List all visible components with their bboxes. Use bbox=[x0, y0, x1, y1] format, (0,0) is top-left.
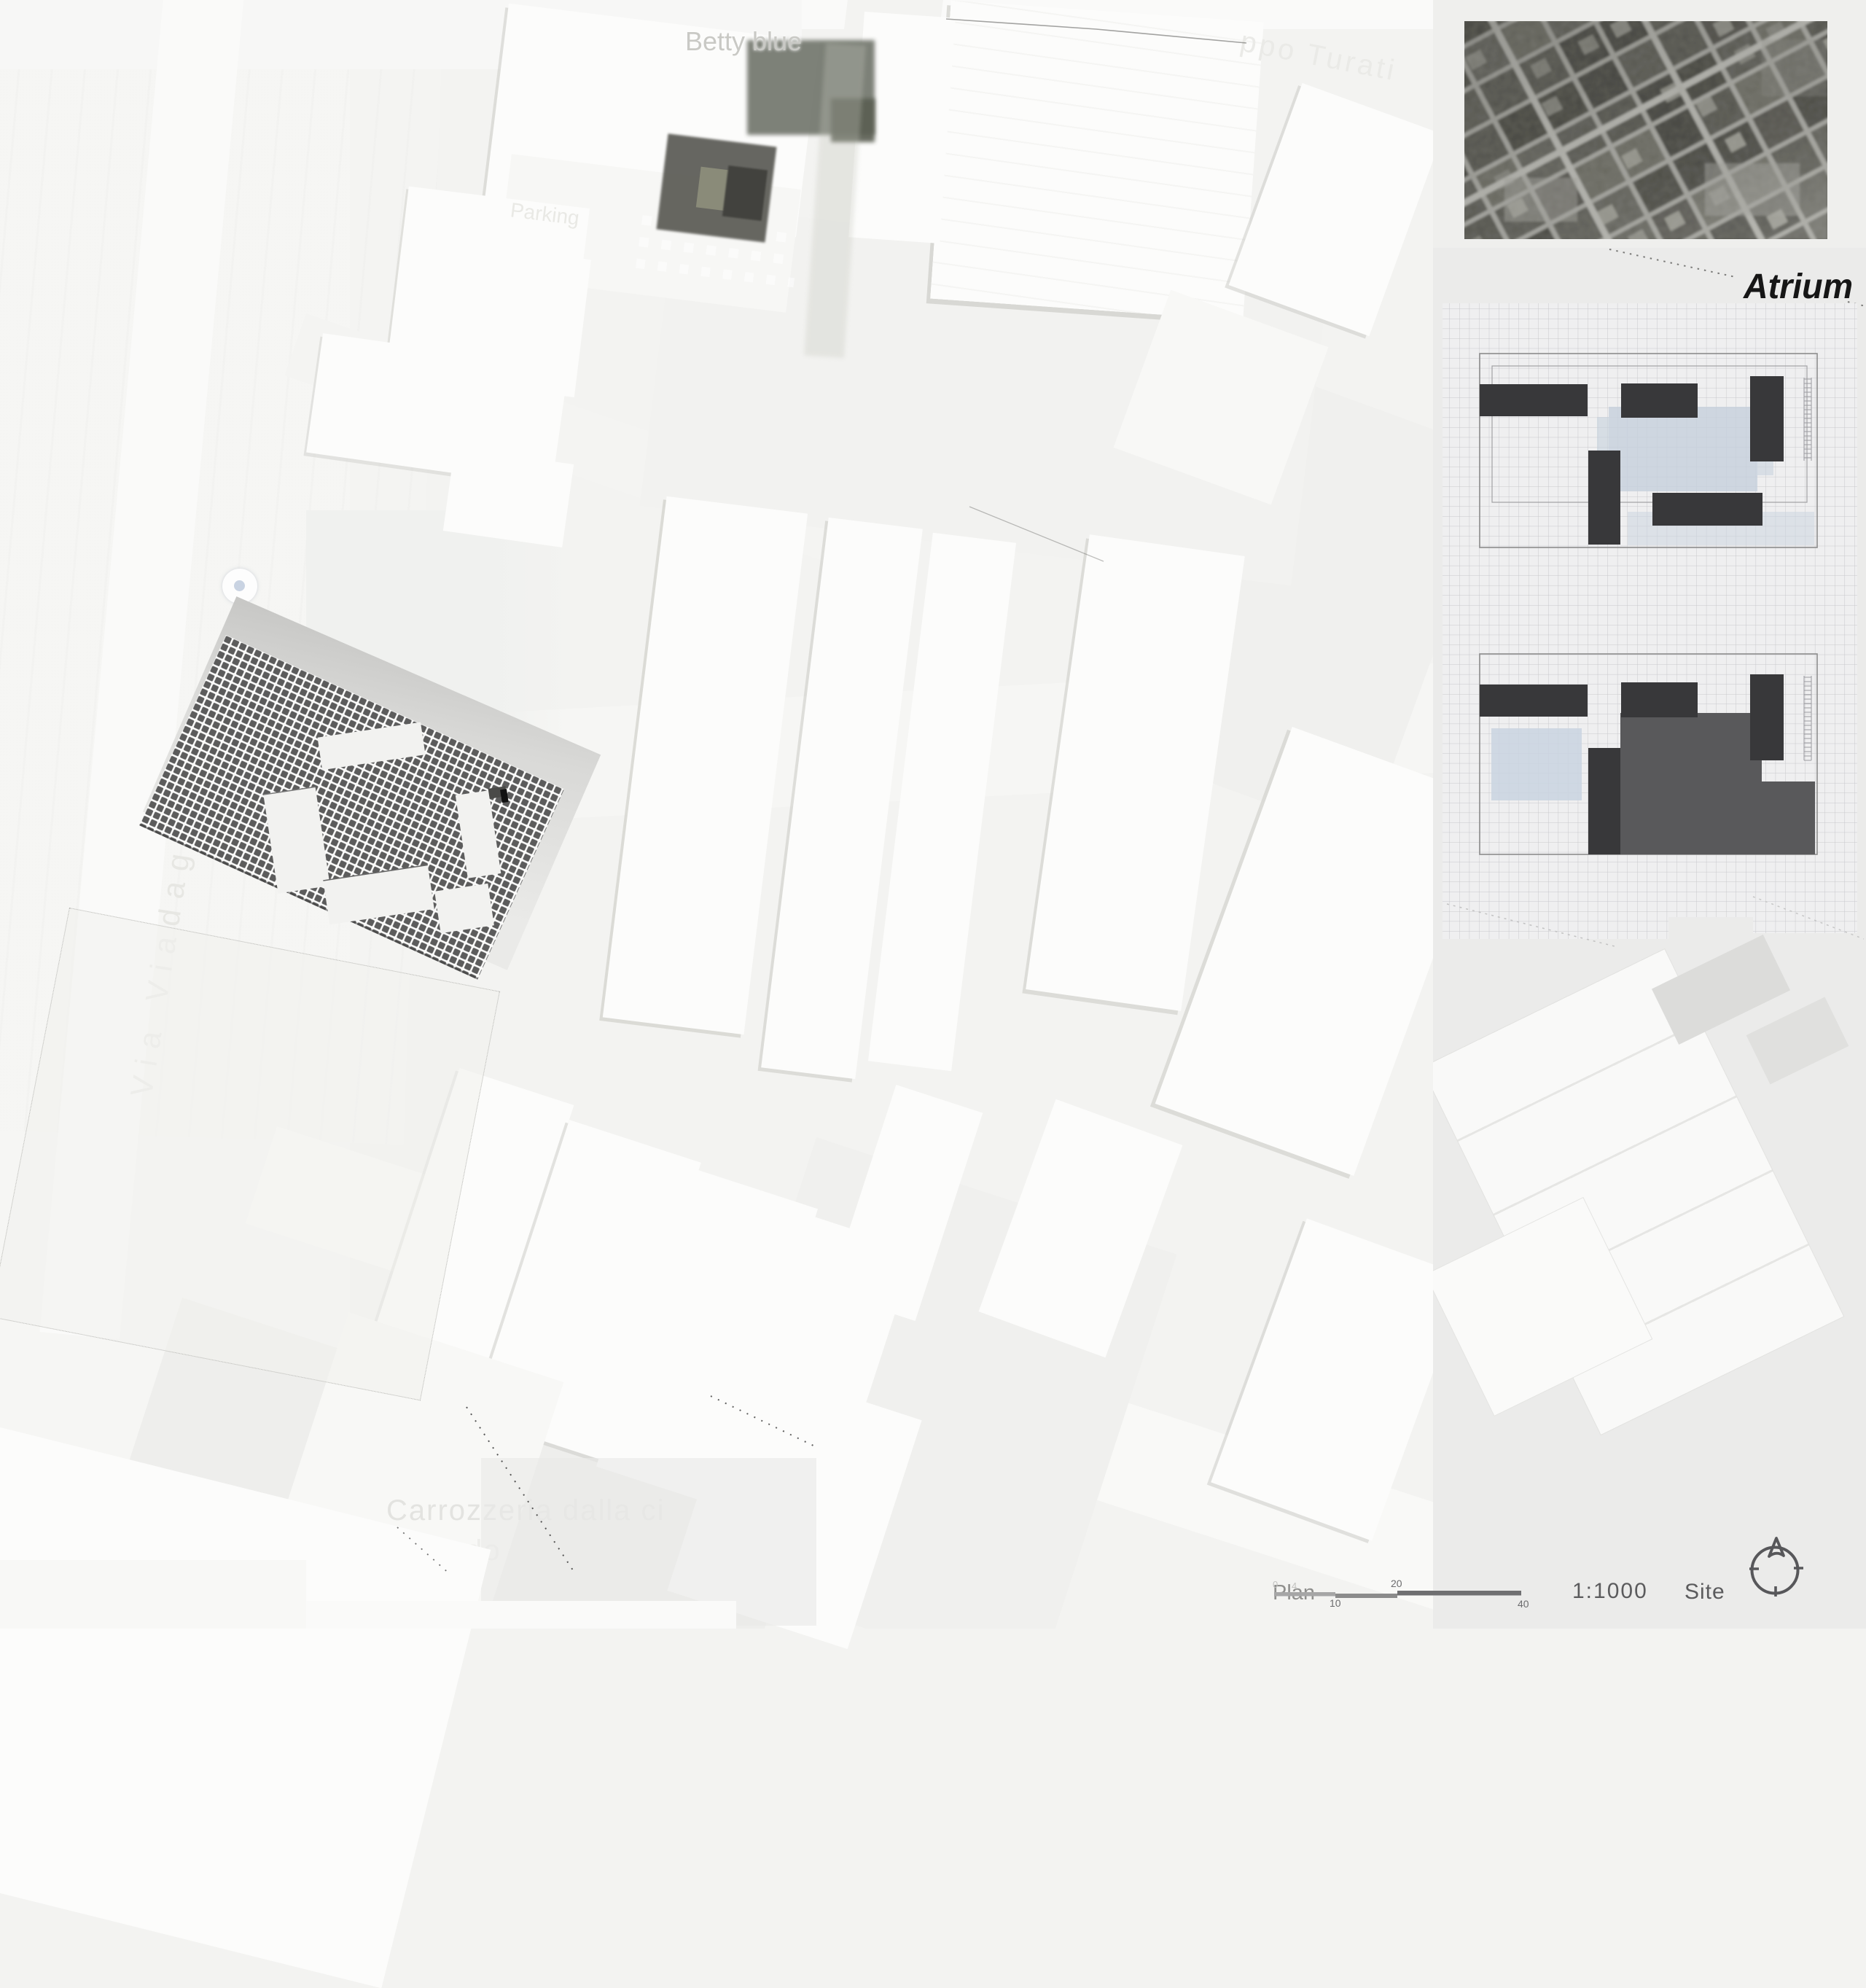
svg-text:0: 0 bbox=[1273, 1579, 1278, 1590]
svg-text:10: 10 bbox=[1330, 1597, 1341, 1609]
svg-text:20: 20 bbox=[1391, 1578, 1402, 1589]
svg-text:40: 40 bbox=[1518, 1598, 1529, 1610]
svg-text:4: 4 bbox=[1292, 1580, 1297, 1591]
